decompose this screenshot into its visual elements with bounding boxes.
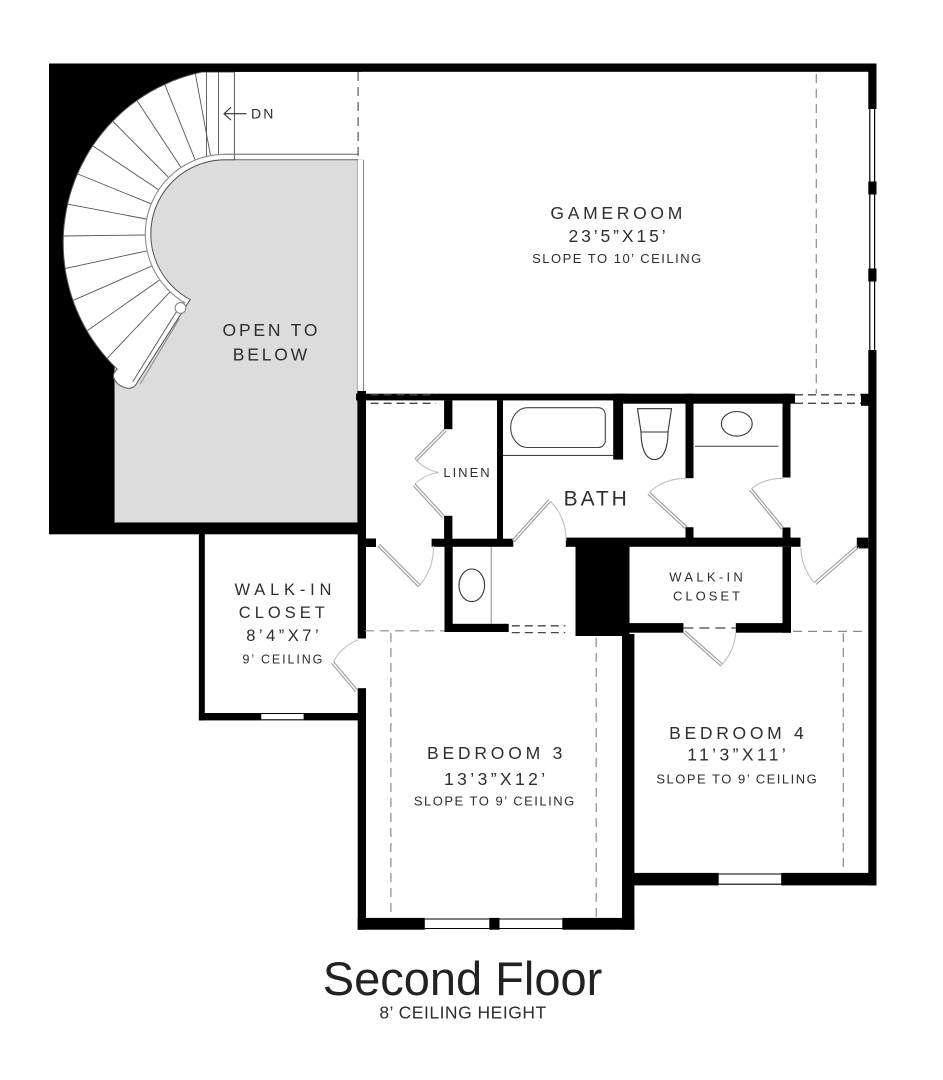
- svg-text:13’3”X12’: 13’3”X12’: [444, 769, 549, 789]
- svg-text:SLOPE TO 9’ CEILING: SLOPE TO 9’ CEILING: [656, 772, 818, 787]
- svg-text:LINEN: LINEN: [443, 465, 491, 480]
- svg-text:SLOPE TO 9’ CEILING: SLOPE TO 9’ CEILING: [414, 794, 576, 809]
- svg-text:BEDROOM 4: BEDROOM 4: [669, 723, 807, 743]
- svg-text:BELOW: BELOW: [233, 345, 310, 365]
- svg-text:8’ CEILING HEIGHT: 8’ CEILING HEIGHT: [379, 1003, 546, 1023]
- svg-text:9’ CEILING: 9’ CEILING: [243, 653, 325, 667]
- svg-text:CLOSET: CLOSET: [673, 589, 743, 604]
- svg-text:WALK-IN: WALK-IN: [669, 570, 746, 585]
- svg-text:11’3”X11’: 11’3”X11’: [687, 745, 789, 765]
- svg-text:OPEN TO: OPEN TO: [223, 320, 321, 340]
- svg-text:8’4”X7’: 8’4”X7’: [246, 627, 322, 645]
- svg-text:CLOSET: CLOSET: [239, 604, 329, 622]
- svg-text:WALK-IN: WALK-IN: [235, 581, 337, 599]
- svg-text:BATH: BATH: [564, 488, 630, 511]
- svg-text:Second Floor: Second Floor: [323, 952, 603, 1005]
- svg-text:23’5”X15’: 23’5”X15’: [568, 226, 668, 246]
- svg-text:DN: DN: [251, 106, 276, 122]
- svg-text:SLOPE TO 10’ CEILING: SLOPE TO 10’ CEILING: [532, 251, 703, 266]
- svg-text:BEDROOM 3: BEDROOM 3: [427, 743, 566, 763]
- svg-text:GAMEROOM: GAMEROOM: [550, 203, 686, 223]
